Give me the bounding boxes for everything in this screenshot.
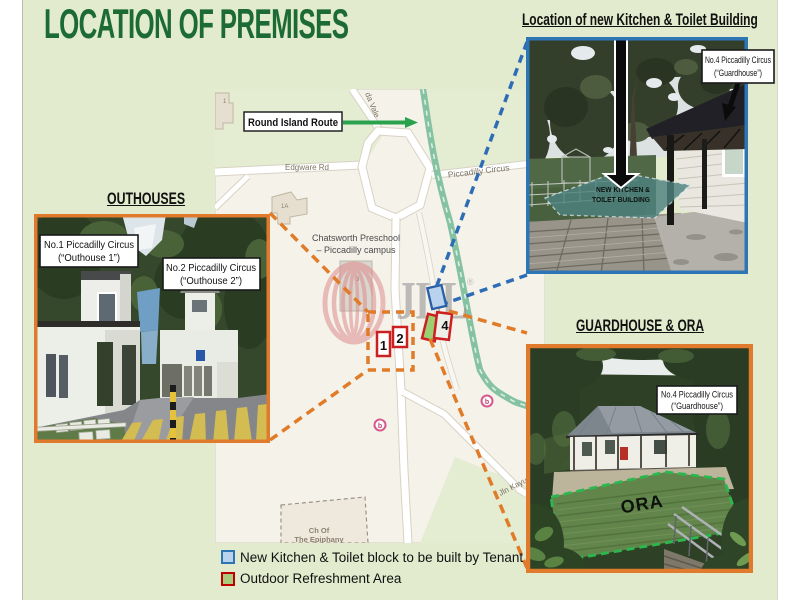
svg-text:No.4 Piccadilly Circus: No.4 Piccadilly Circus	[705, 55, 771, 66]
svg-text:No.2 Piccadilly Circus: No.2 Piccadilly Circus	[166, 262, 256, 274]
svg-text:(“Outhouse 2”): (“Outhouse 2”)	[180, 275, 242, 287]
svg-text:TOILET BUILDING: TOILET BUILDING	[592, 195, 650, 204]
svg-text:(“Guardhouse”): (“Guardhouse”)	[714, 68, 762, 79]
svg-text:(“Guardhouse”): (“Guardhouse”)	[671, 401, 723, 412]
svg-text:No.1 Piccadilly Circus: No.1 Piccadilly Circus	[44, 239, 134, 251]
svg-text:(“Outhouse 1”): (“Outhouse 1”)	[58, 252, 120, 264]
svg-text:No.4 Piccadilly Circus: No.4 Piccadilly Circus	[661, 390, 733, 401]
